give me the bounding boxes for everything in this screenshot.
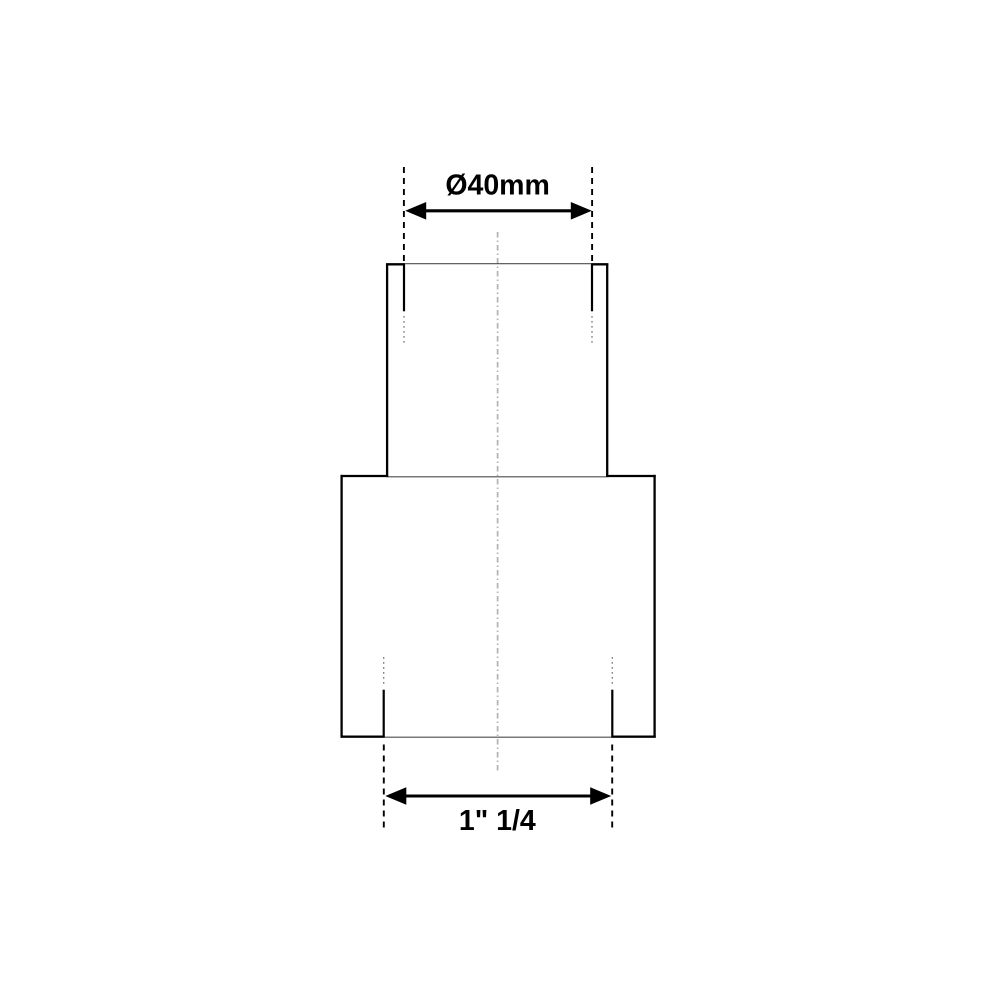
svg-text:Ø40mm: Ø40mm <box>445 170 550 202</box>
svg-text:1" 1/4: 1" 1/4 <box>459 805 536 837</box>
